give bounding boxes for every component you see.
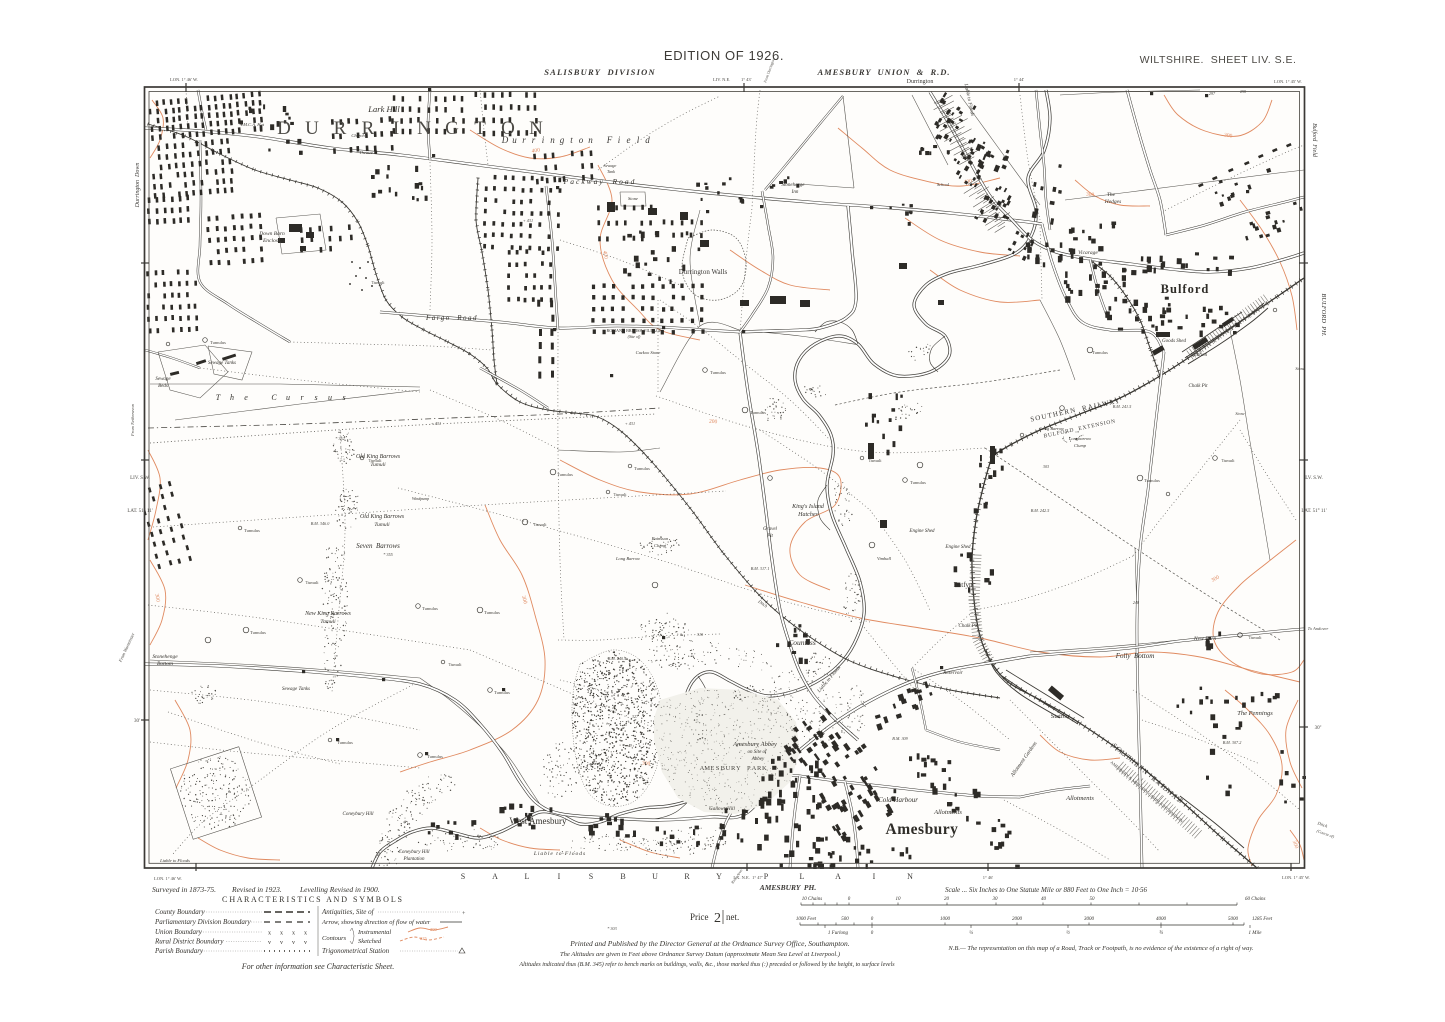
svg-text:Tumulus: Tumulus <box>422 606 438 611</box>
svg-text:D: D <box>501 135 509 145</box>
svg-text:Packway Road: Packway Road <box>563 177 637 186</box>
svg-text:½: ½ <box>1066 931 1070 936</box>
svg-text:Parliamentary Division Boundar: Parliamentary Division Boundary <box>154 918 252 926</box>
svg-text:Levelling Revised in 1900.: Levelling Revised in 1900. <box>299 885 380 894</box>
svg-text:LIV. N.E.: LIV. N.E. <box>713 77 730 82</box>
svg-text:LIV. S.W.: LIV. S.W. <box>130 476 150 481</box>
svg-text:Tumuli: Tumuli <box>868 458 882 463</box>
svg-text:S: S <box>716 765 720 772</box>
svg-text:Gravel: Gravel <box>763 527 777 532</box>
svg-text:Surveyed in 1873-75.: Surveyed in 1873-75. <box>152 885 216 894</box>
svg-text:Inn: Inn <box>791 190 799 195</box>
svg-text:Engine Shed: Engine Shed <box>944 545 971 550</box>
svg-text:Windpump: Windpump <box>412 496 429 501</box>
svg-text:School: School <box>937 182 950 187</box>
svg-text:AMESBURY PH.: AMESBURY PH. <box>759 883 817 892</box>
svg-text:303: 303 <box>1043 464 1049 469</box>
svg-text:Tumulus: Tumulus <box>1092 350 1108 355</box>
svg-text:Pit: Pit <box>766 534 773 539</box>
svg-text:Tumulus: Tumulus <box>634 466 650 471</box>
svg-text:297: 297 <box>1209 91 1216 96</box>
svg-text:Hatches: Hatches <box>797 512 818 518</box>
svg-text:v: v <box>292 940 295 946</box>
svg-text:Rainsson: Rainsson <box>651 536 669 541</box>
svg-text:Altitudes indicated thus (B.M.: Altitudes indicated thus (B.M. 345) refe… <box>518 961 895 968</box>
svg-text:LAT. 51° 11': LAT. 51° 11' <box>127 509 152 514</box>
svg-text:10 Chains: 10 Chains <box>802 897 822 902</box>
svg-text:M: M <box>704 765 710 772</box>
svg-text:Scale ... Six Inches to One St: Scale ... Six Inches to One Statute Mile… <box>945 886 1148 894</box>
svg-text:Bottom: Bottom <box>157 661 173 667</box>
svg-text:Price: Price <box>690 912 709 922</box>
svg-text:To Andover: To Andover <box>1308 626 1329 631</box>
svg-text:LON. 1° 45' W.: LON. 1° 45' W. <box>1274 79 1302 84</box>
svg-text:R: R <box>684 872 690 881</box>
svg-text:v: v <box>304 940 307 946</box>
svg-text:D: D <box>277 118 291 139</box>
svg-text:Vimhall: Vimhall <box>877 556 892 561</box>
svg-text:200: 200 <box>709 419 718 426</box>
svg-text:Station: Station <box>1193 353 1208 358</box>
svg-text:The: The <box>1107 192 1116 198</box>
svg-text:s: s <box>314 393 317 402</box>
svg-text:Tumuli: Tumuli <box>305 580 319 585</box>
svg-text:Clump: Clump <box>1074 443 1087 448</box>
svg-text:Countess: Countess <box>788 638 816 647</box>
svg-text:B.M. 317.1: B.M. 317.1 <box>751 566 770 571</box>
svg-text:+ 431: + 431 <box>523 218 533 223</box>
svg-text:B.M. 307.2: B.M. 307.2 <box>1223 740 1242 745</box>
svg-text:1000: 1000 <box>940 917 951 922</box>
svg-text:Engine Shed: Engine Shed <box>908 529 935 534</box>
svg-text:Vicarage: Vicarage <box>1078 250 1098 256</box>
svg-text:2000: 2000 <box>1012 917 1023 922</box>
svg-text:Coneybury Hill: Coneybury Hill <box>343 812 375 817</box>
svg-text:P: P <box>747 765 751 772</box>
svg-text:Tumuli: Tumuli <box>448 662 462 667</box>
svg-text:200: 200 <box>430 927 438 932</box>
svg-text:N: N <box>907 872 913 881</box>
svg-text:n: n <box>550 135 555 145</box>
svg-text:r: r <box>532 135 536 145</box>
svg-text:Tumulus: Tumulus <box>484 610 500 615</box>
svg-text:x: x <box>292 931 295 937</box>
svg-text:Tumuli: Tumuli <box>1248 635 1262 640</box>
svg-text:30'': 30'' <box>1315 726 1322 731</box>
svg-text:Contours: Contours <box>322 935 347 942</box>
svg-text:Durrington Walls: Durrington Walls <box>679 268 728 276</box>
svg-text:Liable to Floods: Liable to Floods <box>159 858 190 863</box>
svg-text:New Barn: New Barn <box>1193 636 1216 642</box>
svg-text:I: I <box>558 872 561 881</box>
svg-text:T: T <box>474 118 486 139</box>
svg-text:West Amesbury: West Amesbury <box>509 816 567 826</box>
svg-text:30': 30' <box>134 719 140 724</box>
svg-text:ROMANO BRITISH VILLAGE: ROMANO BRITISH VILLAGE <box>606 328 661 333</box>
svg-text:500: 500 <box>841 917 849 922</box>
svg-text:B.M. 242.5: B.M. 242.5 <box>1031 508 1050 513</box>
svg-text:B.M. 241.5: B.M. 241.5 <box>1113 404 1132 409</box>
svg-text:A: A <box>752 765 757 772</box>
svg-text:Sewage: Sewage <box>155 377 171 382</box>
svg-text:U: U <box>726 765 731 772</box>
svg-text:S: S <box>461 872 465 881</box>
svg-text:Old King Barrows: Old King Barrows <box>360 514 405 520</box>
svg-text:on Site of: on Site of <box>748 750 767 755</box>
svg-text:1285 Feet: 1285 Feet <box>1252 917 1273 922</box>
svg-text:Tumulus: Tumulus <box>427 754 443 759</box>
svg-text:LV. S.W.: LV. S.W. <box>1305 476 1323 481</box>
svg-text:Tumulus: Tumulus <box>337 740 353 745</box>
svg-text:C H A R A C T E R I S T I C S: C H A R A C T E R I S T I C S A N D S Y … <box>222 895 402 904</box>
svg-text:U: U <box>652 872 658 881</box>
svg-text:* 352: * 352 <box>335 436 344 441</box>
svg-text:Durrington Down: Durrington Down <box>135 163 141 209</box>
svg-text:u: u <box>512 135 517 145</box>
svg-text:Antiquities, Site of: Antiquities, Site of <box>321 908 375 916</box>
svg-text:Tank: Tank <box>607 169 615 174</box>
svg-text:Revised in 1923.: Revised in 1923. <box>231 885 282 894</box>
svg-text:* 355: * 355 <box>383 552 392 557</box>
svg-text:B: B <box>620 872 625 881</box>
svg-text:County Boundary: County Boundary <box>155 908 205 916</box>
svg-text:300: 300 <box>1224 132 1233 139</box>
svg-text:Seven Barrows: Seven Barrows <box>356 542 400 550</box>
svg-text:n: n <box>588 135 593 145</box>
svg-text:Stonehenge: Stonehenge <box>152 654 178 660</box>
svg-text:e: e <box>244 393 248 402</box>
svg-text:Allotments: Allotments <box>1065 795 1094 802</box>
svg-text:2: 2 <box>714 911 721 926</box>
svg-text:5000: 5000 <box>1228 917 1239 922</box>
svg-text:Tumuli: Tumuli <box>613 492 627 497</box>
svg-text:From Netheravon: From Netheravon <box>130 403 135 437</box>
svg-text:L: L <box>800 872 805 881</box>
svg-text:P: P <box>764 872 769 881</box>
svg-text:h: h <box>230 393 234 402</box>
svg-text:G: G <box>445 118 459 139</box>
svg-text:Durrington: Durrington <box>907 79 934 85</box>
svg-text:T: T <box>216 393 221 402</box>
svg-text:Sewage Tanks: Sewage Tanks <box>282 687 310 692</box>
svg-text:o: o <box>579 135 584 145</box>
svg-text:Chalk Pit: Chalk Pit <box>958 624 978 629</box>
svg-text:B.M. 309: B.M. 309 <box>892 736 908 741</box>
svg-text:x: x <box>280 931 283 937</box>
svg-text:S: S <box>589 872 593 881</box>
svg-text:Allotments: Allotments <box>933 809 962 816</box>
svg-text:LON. 1° 46' W.: LON. 1° 46' W. <box>154 876 182 881</box>
svg-text:v: v <box>268 940 271 946</box>
svg-text:(Site of): (Site of) <box>628 334 641 339</box>
svg-text:Tumuli: Tumuli <box>320 619 336 625</box>
svg-text:Cold Harbour: Cold Harbour <box>878 796 918 804</box>
svg-text:A: A <box>492 872 498 881</box>
svg-text:Tumulus: Tumulus <box>1144 478 1160 483</box>
svg-text:20: 20 <box>944 897 950 902</box>
svg-text:d: d <box>645 135 650 145</box>
svg-text:1 Mile: 1 Mile <box>1249 931 1263 936</box>
svg-text:Chalk Pit: Chalk Pit <box>1188 384 1208 389</box>
svg-text:g: g <box>560 135 565 145</box>
svg-text:N.B.— The representation on th: N.B.— The representation on this map of … <box>947 945 1254 952</box>
svg-text:Lark Hill: Lark Hill <box>367 104 400 114</box>
svg-text:¾: ¾ <box>1159 931 1163 936</box>
svg-text:I: I <box>873 872 876 881</box>
svg-text:1° 44': 1° 44' <box>1014 77 1025 82</box>
svg-text:Printed and Published by the D: Printed and Published by the Director Ge… <box>569 939 850 948</box>
svg-text:Instrumental: Instrumental <box>357 929 391 936</box>
svg-text:WILTSHIRE. SHEET LIV. S.E.: WILTSHIRE. SHEET LIV. S.E. <box>1140 54 1297 66</box>
svg-text:u: u <box>286 393 290 402</box>
svg-text:Parish Boundary: Parish Boundary <box>154 947 204 955</box>
svg-text:r: r <box>522 135 526 145</box>
svg-text:Y.M.C.A. Hut: Y.M.C.A. Hut <box>240 122 265 127</box>
svg-text:SALISBURY DIVISION: SALISBURY DIVISION <box>544 67 656 77</box>
svg-text:Amesbury: Amesbury <box>886 821 959 838</box>
svg-text:e: e <box>627 135 631 145</box>
svg-text:Enclosure: Enclosure <box>262 238 286 244</box>
svg-text:x: x <box>268 931 271 937</box>
svg-text:Plantation: Plantation <box>402 857 425 862</box>
svg-text:Tumulus: Tumulus <box>710 370 726 375</box>
svg-text:U: U <box>305 118 319 139</box>
svg-text:Long Barrow: Long Barrow <box>615 556 640 561</box>
svg-text:Y: Y <box>716 872 722 881</box>
svg-text:Theatre: Theatre <box>359 150 373 155</box>
svg-text:Church: Church <box>351 133 365 138</box>
svg-text:225: 225 <box>420 936 428 941</box>
svg-text:BULFORD PH.: BULFORD PH. <box>1320 293 1327 337</box>
svg-text:Coneybury Hill: Coneybury Hill <box>399 850 431 855</box>
svg-text:AMESBURY UNION & R.D.: AMESBURY UNION & R.D. <box>816 67 950 77</box>
svg-text:Reservoir: Reservoir <box>942 671 962 676</box>
svg-text:u: u <box>328 393 332 402</box>
svg-text:Tumulus: Tumulus <box>494 690 510 695</box>
svg-text:The Altitudes are given in Fee: The Altitudes are given in Feet above Or… <box>560 951 840 958</box>
svg-text:1° 46': 1° 46' <box>983 875 994 880</box>
svg-text:Tumulus: Tumulus <box>244 528 260 533</box>
svg-text:E: E <box>710 765 714 772</box>
svg-text:300: 300 <box>642 761 651 768</box>
svg-text:Abbey: Abbey <box>751 757 765 762</box>
svg-text:Gallows Hill: Gallows Hill <box>709 807 735 812</box>
svg-text:* 303: * 303 <box>607 926 616 931</box>
svg-text:248: 248 <box>1133 600 1140 605</box>
svg-text:Tumuli: Tumuli <box>371 280 385 285</box>
svg-text:N: N <box>417 118 431 139</box>
svg-text:60 Chains: 60 Chains <box>1245 897 1265 902</box>
svg-text:30: 30 <box>993 897 999 902</box>
svg-text:Amesbury Abbey: Amesbury Abbey <box>732 741 777 748</box>
svg-text:Tumuli: Tumuli <box>368 458 382 463</box>
svg-text:Cuckoo Stone: Cuckoo Stone <box>636 350 661 355</box>
svg-text:C: C <box>271 393 277 402</box>
svg-text:Tumulus: Tumulus <box>210 340 226 345</box>
svg-text:Union Boundary: Union Boundary <box>155 928 203 936</box>
svg-text:Stone: Stone <box>1295 366 1304 371</box>
svg-text:EDITION OF 1926.: EDITION OF 1926. <box>664 48 784 63</box>
svg-text:L: L <box>525 872 530 881</box>
svg-text:298: 298 <box>1240 89 1246 94</box>
svg-text:v: v <box>280 940 283 946</box>
svg-text:New King Barrows: New King Barrows <box>304 611 351 617</box>
svg-text:327: 327 <box>632 714 639 719</box>
svg-text:10: 10 <box>896 897 902 902</box>
svg-text:net.: net. <box>726 912 739 922</box>
svg-text:Goods Shed: Goods Shed <box>1162 339 1187 344</box>
svg-text:Tumulus: Tumulus <box>750 410 766 415</box>
svg-text:310: 310 <box>697 632 704 637</box>
svg-text:Bulford Field: Bulford Field <box>1311 123 1318 158</box>
svg-text:LON. 1° 46' W.: LON. 1° 46' W. <box>170 77 198 82</box>
svg-text:¼: ¼ <box>969 931 973 936</box>
svg-text:1 Furlong: 1 Furlong <box>828 931 849 936</box>
svg-text:4000: 4000 <box>1156 917 1167 922</box>
svg-text:For other information see Char: For other information see Characteristic… <box>241 962 394 971</box>
svg-text:Station: Station <box>1051 713 1070 720</box>
svg-text:Stone: Stone <box>628 196 638 201</box>
svg-text:Y: Y <box>736 765 741 772</box>
svg-text:Clump: Clump <box>654 543 667 548</box>
svg-text:50: 50 <box>1090 897 1096 902</box>
svg-text:Tumulus: Tumulus <box>557 472 573 477</box>
svg-text:Stone: Stone <box>1235 411 1244 416</box>
svg-text:Hedges: Hedges <box>1104 199 1122 205</box>
svg-text:LON. 1° 45' W.: LON. 1° 45' W. <box>1282 875 1310 880</box>
svg-text:Bulford: Bulford <box>1161 282 1210 296</box>
svg-text:Tumuli: Tumuli <box>374 522 390 528</box>
svg-text:I: I <box>393 118 399 139</box>
svg-text:King's Island: King's Island <box>791 504 825 510</box>
svg-text:Tumulus: Tumulus <box>910 480 926 485</box>
svg-text:Sketched: Sketched <box>358 938 382 945</box>
svg-text:x: x <box>304 931 307 937</box>
svg-text:Ratfyn: Ratfyn <box>953 581 973 589</box>
svg-text:Trigonometrical Station: Trigonometrical Station <box>322 947 390 955</box>
svg-text:R: R <box>334 118 347 139</box>
svg-text:LAT. 51° 11': LAT. 51° 11' <box>1301 509 1326 514</box>
svg-text:Folly Bottom: Folly Bottom <box>1115 652 1155 660</box>
svg-text:Tumulus: Tumulus <box>250 630 266 635</box>
svg-text:B.M. 340.4: B.M. 340.4 <box>608 656 627 661</box>
svg-text:The Pennings: The Pennings <box>1237 710 1273 717</box>
svg-text:1000 Feet: 1000 Feet <box>796 917 817 922</box>
svg-text:Stonehenge: Stonehenge <box>781 183 805 188</box>
svg-text:Sewage: Sewage <box>604 163 617 168</box>
svg-text:3000: 3000 <box>1084 917 1095 922</box>
svg-text:A: A <box>835 872 841 881</box>
svg-text:Beds: Beds <box>158 384 168 389</box>
svg-text:Sewage Tanks: Sewage Tanks <box>208 361 236 366</box>
svg-text:s: s <box>342 393 345 402</box>
svg-text:B.M. 346.0: B.M. 346.0 <box>311 521 331 526</box>
svg-text:K: K <box>762 765 767 772</box>
svg-text:+ 431: + 431 <box>431 421 441 426</box>
svg-text:Arrow, showing direction of fl: Arrow, showing direction of flow of wate… <box>321 919 431 926</box>
svg-text:400: 400 <box>531 147 540 154</box>
svg-text:40: 40 <box>1041 897 1047 902</box>
svg-text:Fargo Road: Fargo Road <box>425 314 478 322</box>
svg-text:Tumuli: Tumuli <box>533 522 547 527</box>
svg-text:+ 431: + 431 <box>625 421 635 426</box>
svg-text:F: F <box>606 135 613 145</box>
svg-text:Rural District Boundary: Rural District Boundary <box>154 938 224 946</box>
svg-text:Down Barn: Down Barn <box>258 231 285 237</box>
svg-text:Tumuli: Tumuli <box>1221 458 1235 463</box>
svg-text:Liable to Floods: Liable to Floods <box>533 851 586 857</box>
svg-text:1° 43': 1° 43' <box>741 77 752 82</box>
svg-text:Longbarrow: Longbarrow <box>1068 436 1091 441</box>
